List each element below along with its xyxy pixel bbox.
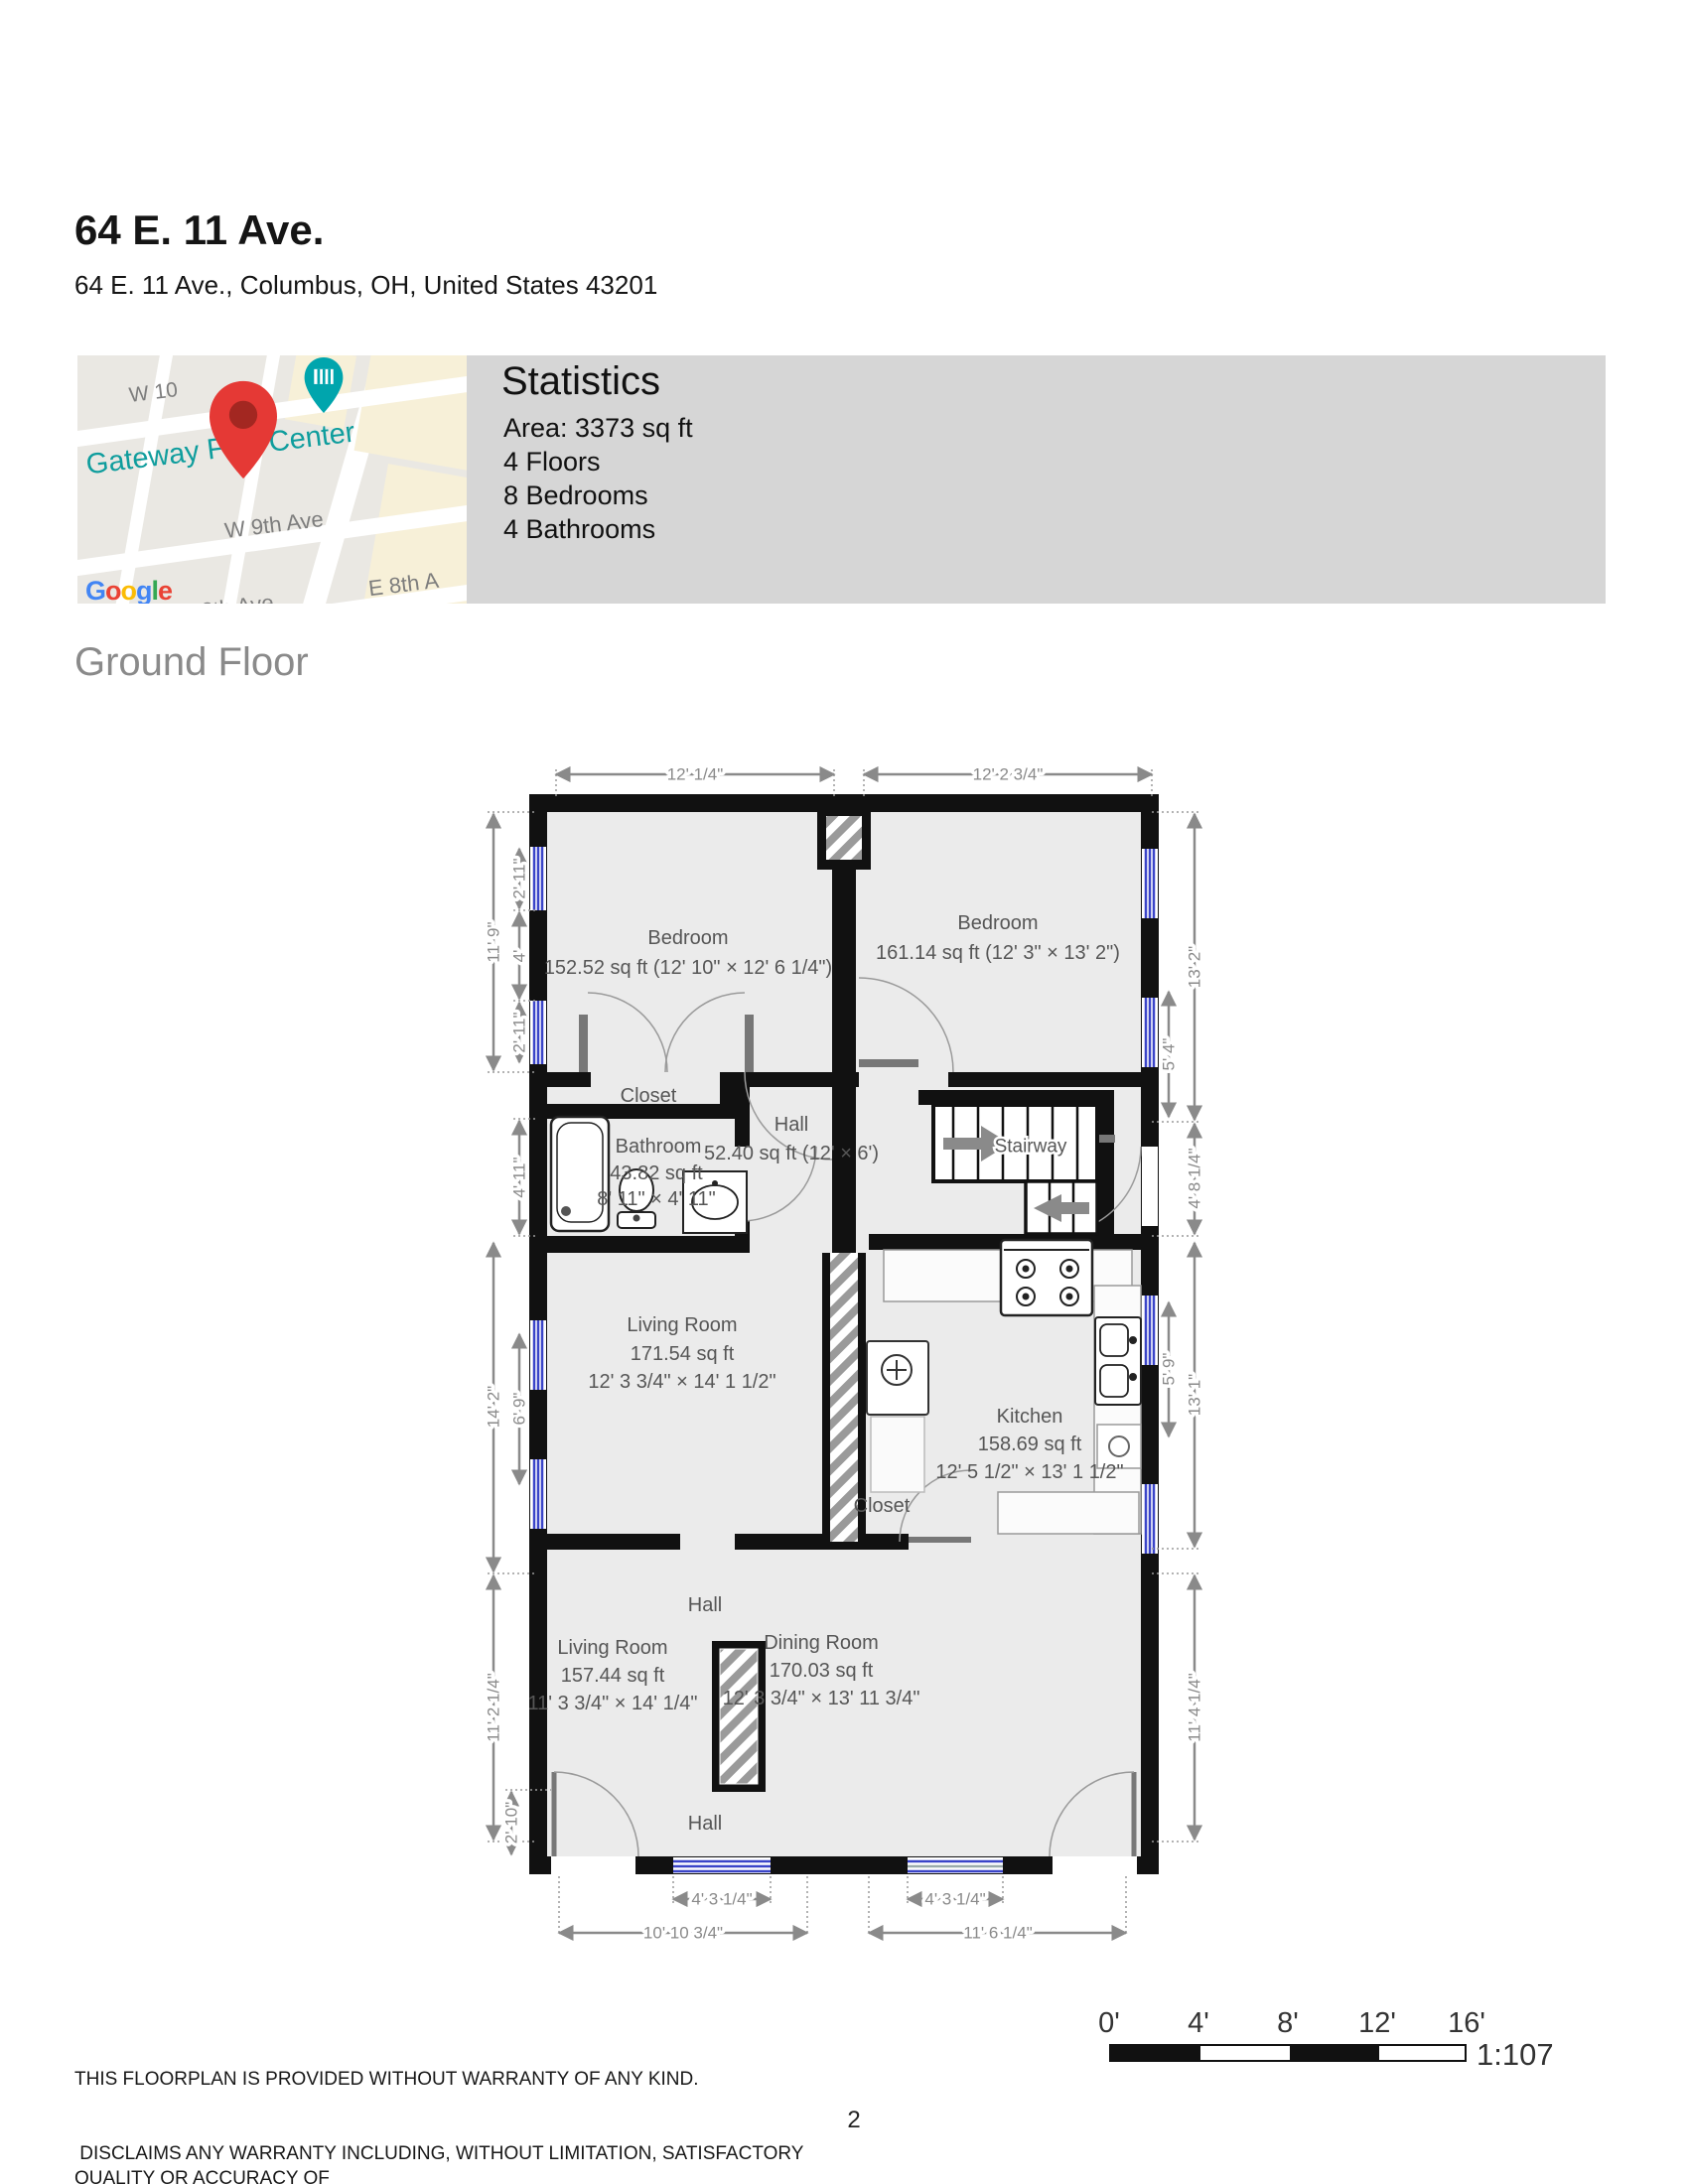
water-heater-icon [867,1341,928,1492]
dim-label: 14' 2" [485,1386,503,1428]
dim-label: 2' 11" [510,858,529,898]
room-label: Bathroom [616,1136,702,1158]
bathtub-icon [551,1117,609,1231]
scale-segment [1111,2046,1200,2060]
room-size: 161.14 sq ft (12' 3" × 13' 2") [876,942,1120,964]
google-logo-letter: g [136,576,152,604]
right-door-opening [1142,1147,1158,1226]
window [1142,1296,1158,1365]
room-label: Living Room [557,1637,667,1659]
page-number: 2 [834,2107,874,2134]
disclaimer-line: THIS FLOORPLAN IS PROVIDED WITHOUT WARRA… [74,2067,869,2092]
room-label: Bedroom [957,912,1038,934]
page-title: 64 E. 11 Ave. [74,206,324,254]
window [530,1459,546,1529]
window [530,1001,546,1064]
room-label: Hall [774,1114,808,1136]
room-size: 8' 11" × 4' 11" [597,1188,716,1210]
window [530,847,546,910]
dim-label: 11' 9" [485,921,503,962]
room-size: 43.82 sq ft [610,1162,703,1184]
kitchen-island [998,1492,1139,1534]
google-logo-letter: G [85,576,105,604]
scale-tick: 4' [1188,2007,1209,2040]
dim-label: 2' 10" [502,1802,521,1843]
room-label: Closet [854,1495,911,1517]
entry-door-opening [551,1856,635,1874]
dim-label: 4' 3 1/4" [691,1890,752,1909]
room-label: Living Room [627,1314,737,1336]
google-logo-letter: o [105,576,121,604]
window [673,1857,771,1873]
map-block [354,355,467,473]
kitchen-sink-icon [1095,1317,1141,1405]
room-size: 152.52 sq ft (12' 10" × 12' 6 1/4") [544,957,832,979]
room-size: 171.54 sq ft [631,1343,735,1365]
scale-tick: 0' [1098,2007,1120,2040]
entry-door-opening [1053,1856,1137,1874]
scale-tick: 12' [1358,2007,1396,2040]
floorplan: Bedroom 152.52 sq ft (12' 10" × 12' 6 1/… [442,730,1236,1980]
scale-segment [1290,2046,1379,2060]
room-size: 157.44 sq ft [561,1665,665,1687]
dim-label: 11' 4 1/4" [1186,1673,1204,1741]
dim-label: 6' 9" [510,1393,529,1426]
room-size: 12' 3 3/4" × 14' 1 1/2" [588,1371,775,1393]
room-label: Hall [688,1813,722,1835]
google-logo-letter: e [158,576,172,604]
room-size: 12' 3 3/4" × 13' 11 3/4" [723,1688,920,1709]
map-pin-icon [210,380,277,479]
property-address: 64 E. 11 Ave., Columbus, OH, United Stat… [74,270,657,301]
stat-floors: 4 Floors [503,447,601,478]
dim-label: 4' 3 1/4" [924,1890,985,1909]
room-label: Bedroom [647,927,728,949]
room-size: 11' 3 3/4" × 14' 1/4" [527,1693,697,1714]
room-label: Kitchen [997,1406,1063,1428]
dim-label: 13' 1" [1186,1374,1204,1416]
room-size: 12' 5 1/2" × 13' 1 1/2" [935,1461,1123,1483]
disclaimer-line: DISCLAIMS ANY WARRANTY INCLUDING, WITHOU… [74,2141,869,2184]
dim-label: 5' 9" [1160,1353,1179,1386]
scale-ratio: 1:107 [1477,2037,1554,2073]
map-street-label-w10: W 10 [128,378,180,408]
dim-label: 10' 10 3/4" [643,1924,723,1943]
map-thumbnail: W 10 Gateway Film Center W 9th Ave E 8th… [77,355,467,604]
stat-bathrooms: 4 Bathrooms [503,514,655,545]
room-size: 52.40 sq ft (12' × 6') [704,1143,879,1164]
scale-segment [1200,2046,1290,2060]
dim-label: 12' 2 3/4" [973,765,1044,784]
dim-label: 2' 11" [510,1012,529,1052]
statistics-panel: Statistics Area: 3373 sq ft 4 Floors 8 B… [467,355,1606,604]
window [1142,849,1158,918]
dim-label: 11' 2 1/4" [485,1673,503,1741]
dim-label: 11' 6 1/4" [963,1924,1032,1943]
room-size: 158.69 sq ft [978,1433,1082,1455]
google-logo: Google [85,576,172,604]
dim-label: 4' 11" [510,1157,529,1197]
stove-icon [1001,1240,1092,1315]
dim-label: 4' 8 1/4" [1186,1148,1204,1208]
room-label: Stairway [995,1137,1067,1158]
cinema-pin-icon [304,357,344,413]
stat-area: Area: 3373 sq ft [503,413,693,444]
dim-label: 4' [510,950,529,963]
room-label: Hall [688,1594,722,1616]
room-label: Closet [621,1085,677,1107]
room-label: Dining Room [764,1632,879,1654]
scale-bar [1109,2044,1467,2062]
dim-label: 13' 2" [1186,946,1204,988]
floor-heading: Ground Floor [74,640,309,685]
scale-tick: 16' [1448,2007,1485,2040]
google-logo-letter: o [121,576,137,604]
window [1142,1484,1158,1554]
stat-bedrooms: 8 Bedrooms [503,480,648,511]
window [530,1320,546,1390]
window [1142,998,1158,1067]
scale-segment [1379,2046,1465,2060]
window [908,1857,1003,1873]
statistics-heading: Statistics [501,359,660,404]
dim-label: 12' 1/4" [667,765,724,784]
dim-label: 5' 4" [1160,1038,1179,1071]
scale-tick: 8' [1277,2007,1299,2040]
room-size: 170.03 sq ft [770,1660,874,1682]
document-page: 64 E. 11 Ave. 64 E. 11 Ave., Columbus, O… [0,0,1688,2184]
scale-bar-labels: 0' 4' 8' 12' 16' [0,2007,1688,2043]
